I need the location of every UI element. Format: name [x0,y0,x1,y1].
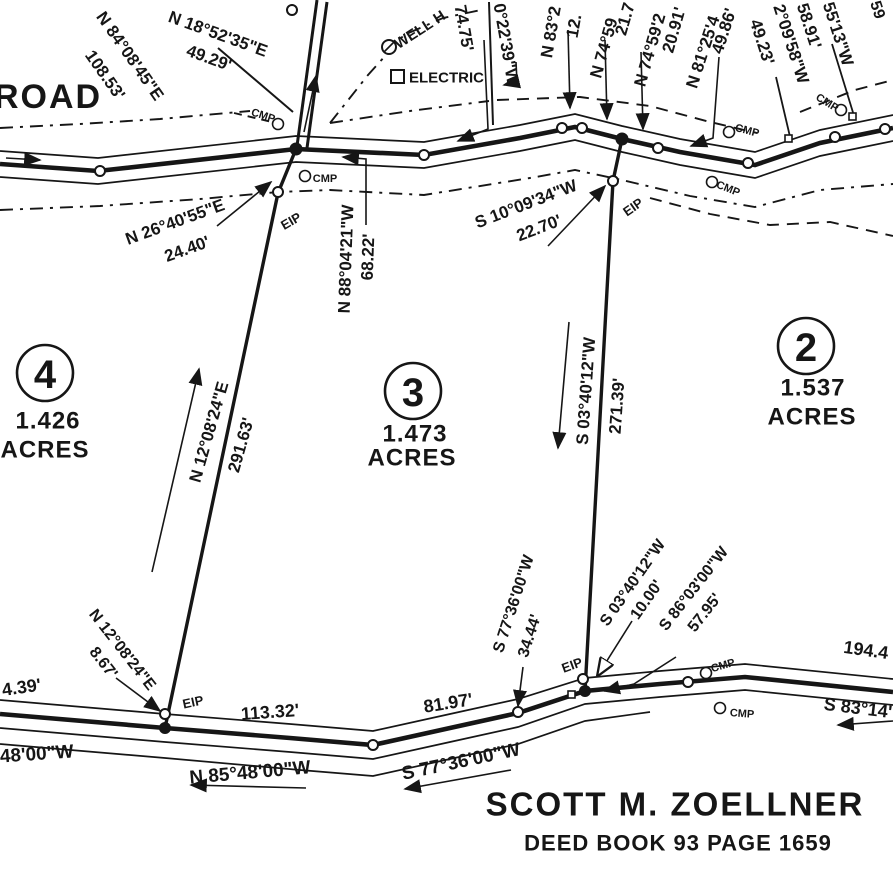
driveway-line [307,2,327,148]
eip-point [273,187,283,197]
survey-plat: ROADN 84°08'45"E108.53'N 18°52'35"E49.29… [0,0,893,879]
lot-acres-word: ACRES [367,445,456,472]
dist-n26: 24.40' [162,232,212,266]
dist-1944: 194.4 [842,637,889,663]
driveway-line [297,0,317,146]
lots-layer: 41.426ACRES31.473ACRES21.537ACRES [0,318,856,472]
cmp-label: CMP [250,107,277,126]
bearing-s83: S 83°14' [823,694,893,722]
eip-label: EIP [560,654,585,675]
tie-line [776,77,791,141]
cmp-label: CMP [729,707,754,721]
bearing-n88: N 88°04'21"W [335,203,358,313]
lot-acres-word: ACRES [767,404,856,431]
road-name: ROAD [0,78,102,116]
dist-439: 4.39' [1,675,43,700]
bearing-n83: N 83°2 [537,5,565,60]
eip-label: EIP [278,209,304,233]
label-fragment: 59 [866,0,888,21]
eip-point [608,176,618,186]
cmp-label: CMP [710,657,737,675]
dist-n88: 68.22' [358,233,379,280]
lot-number: 3 [402,371,424,415]
dist-4923: 49.23' [746,17,778,67]
dist-8197: 81.97' [422,689,474,716]
eip-point [160,709,170,719]
dist-n83: 12. [563,13,586,40]
bearing-022: 0°22'39"W [490,2,523,87]
dist-n74b: 20.91' [658,5,689,55]
boundary-lot4-lot3 [165,149,296,728]
feature-electric: ELECTRIC [409,70,484,87]
dist-11332: 113.32' [240,700,300,724]
deed-ref: DEED BOOK 93 PAGE 1659 [524,831,832,856]
lot-3: 31.473ACRES [367,363,456,472]
plat-drawing: ROADN 84°08'45"E108.53'N 18°52'35"E49.29… [0,0,893,879]
cmp-label: CMP [734,122,761,140]
south-arrow-lot3-line [558,322,569,448]
bearing-s03-main: S 03°40'12"W [573,336,600,446]
lot-acres-word: ACRES [0,437,89,464]
owner-name: SCOTT M. ZOELLNER [486,786,865,823]
feature-well: WELL H [391,7,448,52]
cmp-label: CMP [714,179,741,199]
bearing-partial-4800: 48'00"W [0,741,74,767]
eip-label: EIP [620,195,646,219]
bearing-n26: N 26°40'55"E [123,195,227,248]
cmp-label: CMP [313,173,337,185]
lot-number: 4 [34,353,57,397]
eip-label: EIP [181,692,205,711]
eip-point [578,674,588,684]
electric-symbol [391,70,404,83]
dist-s10: 22.70' [514,211,564,245]
lot-number: 2 [795,326,817,370]
lot-4: 41.426ACRES [0,345,89,464]
dist-s77-small: 34.44' [515,613,545,660]
lot-acreage: 1.473 [382,421,447,448]
lot-acreage: 1.426 [15,408,80,435]
bearing-s77-road: S 77°36'00"W [400,739,522,785]
bearing-5513: 55'13"W [819,0,858,69]
lot-acreage: 1.537 [780,375,845,402]
dist-n74a: 21.7 [611,0,638,37]
lot-2: 21.537ACRES [767,318,856,431]
dist-s03-main: 271.39' [606,377,629,434]
